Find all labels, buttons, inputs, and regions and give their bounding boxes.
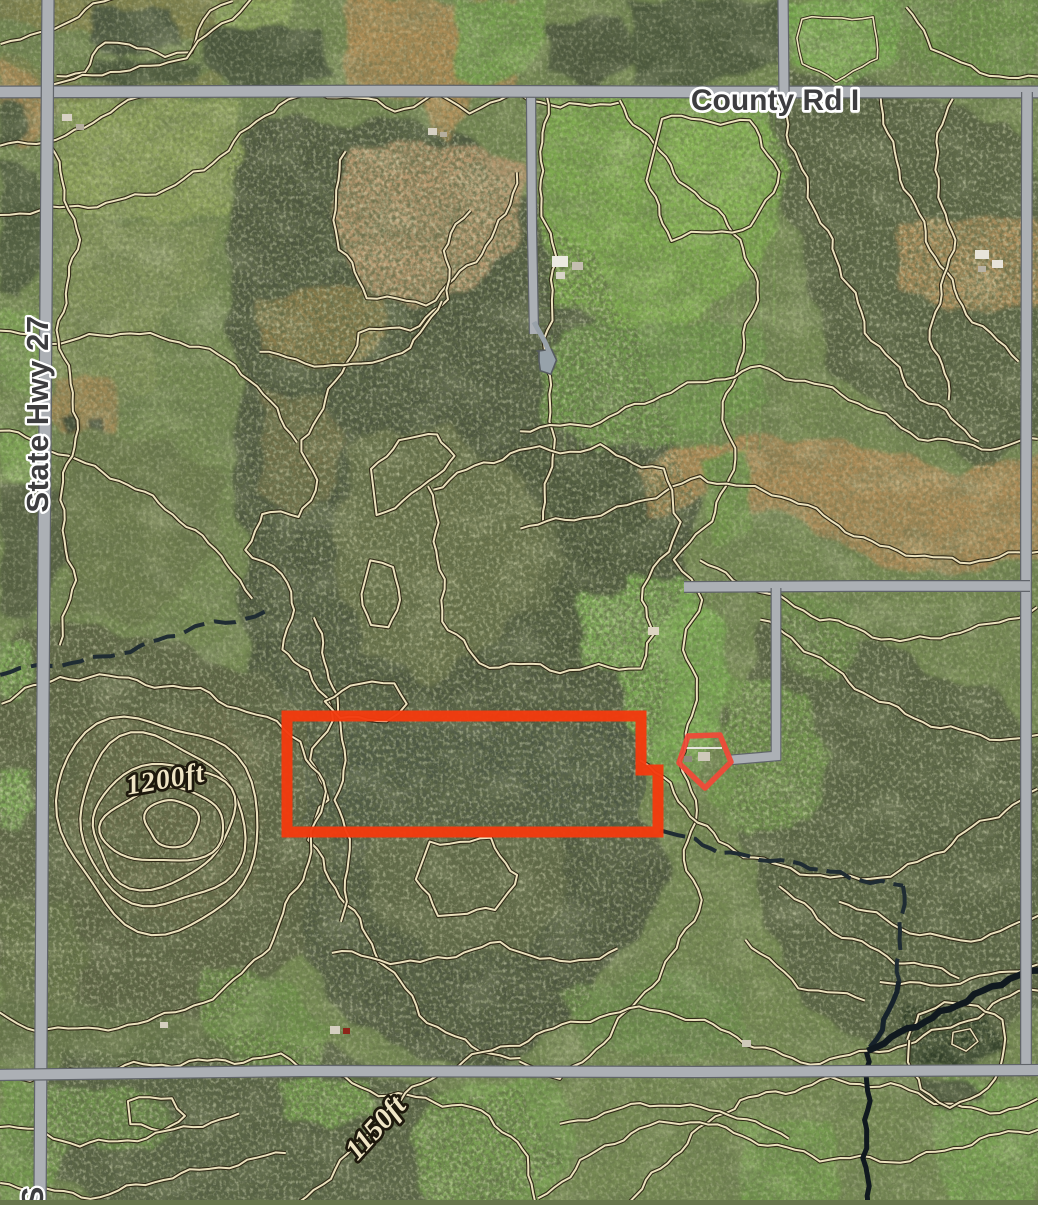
svg-text:County Rd I: County Rd I — [691, 84, 859, 117]
svg-text:S: S — [15, 1187, 50, 1200]
svg-text:State Hwy 27: State Hwy 27 — [20, 315, 55, 512]
